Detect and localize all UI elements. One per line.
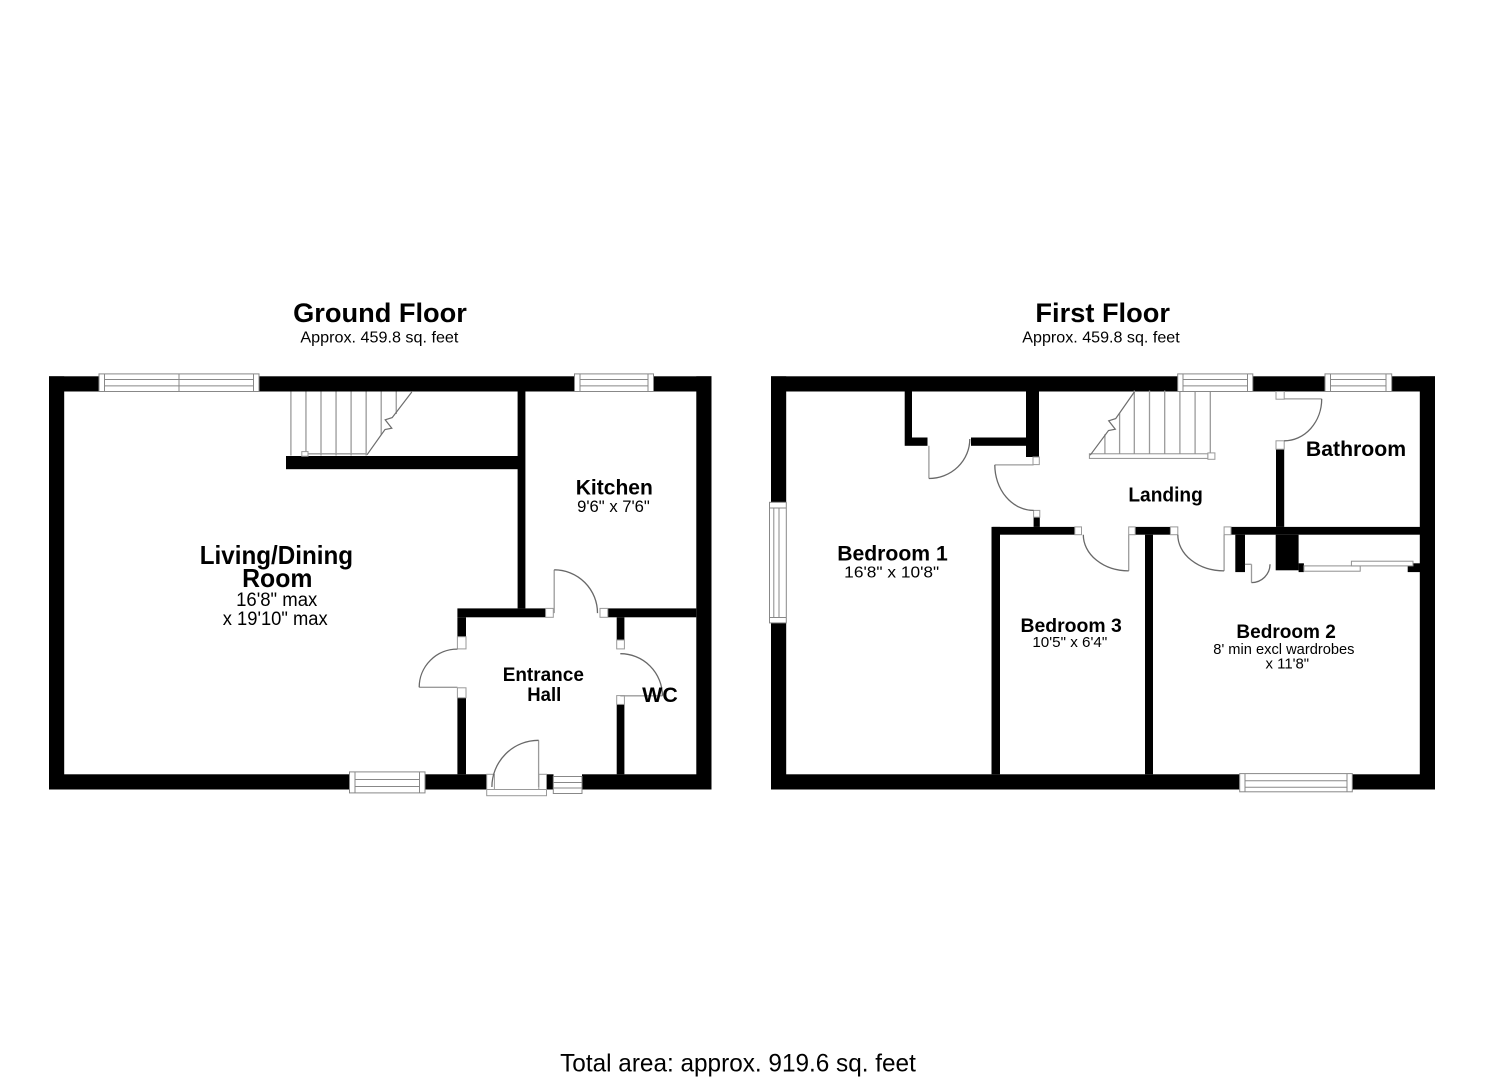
svg-text:x 11'8": x 11'8" xyxy=(1266,656,1310,672)
svg-text:9'6" x 7'6": 9'6" x 7'6" xyxy=(577,498,650,516)
svg-text:Bedroom 2: Bedroom 2 xyxy=(1236,621,1336,643)
svg-text:Ground Floor: Ground Floor xyxy=(293,298,467,328)
svg-text:Bathroom: Bathroom xyxy=(1306,437,1406,461)
svg-text:Entrance: Entrance xyxy=(503,664,584,686)
svg-text:Approx. 459.8 sq. feet: Approx. 459.8 sq. feet xyxy=(300,330,459,347)
svg-text:Landing: Landing xyxy=(1128,483,1203,506)
svg-text:Kitchen: Kitchen xyxy=(576,475,653,499)
svg-text:Hall: Hall xyxy=(527,684,561,706)
svg-text:Room: Room xyxy=(242,563,312,593)
svg-text:Bedroom 1: Bedroom 1 xyxy=(837,541,948,565)
svg-text:10'5" x 6'4": 10'5" x 6'4" xyxy=(1032,635,1107,651)
svg-text:Total area: approx. 919.6 sq.: Total area: approx. 919.6 sq. feet xyxy=(560,1050,916,1078)
svg-text:Bedroom 3: Bedroom 3 xyxy=(1020,615,1121,637)
svg-text:First Floor: First Floor xyxy=(1035,298,1170,328)
svg-text:16'8" x 10'8": 16'8" x 10'8" xyxy=(844,564,939,581)
svg-text:x 19'10" max: x 19'10" max xyxy=(223,609,328,630)
svg-text:Approx. 459.8 sq. feet: Approx. 459.8 sq. feet xyxy=(1022,330,1180,347)
svg-text:WC: WC xyxy=(642,684,678,707)
